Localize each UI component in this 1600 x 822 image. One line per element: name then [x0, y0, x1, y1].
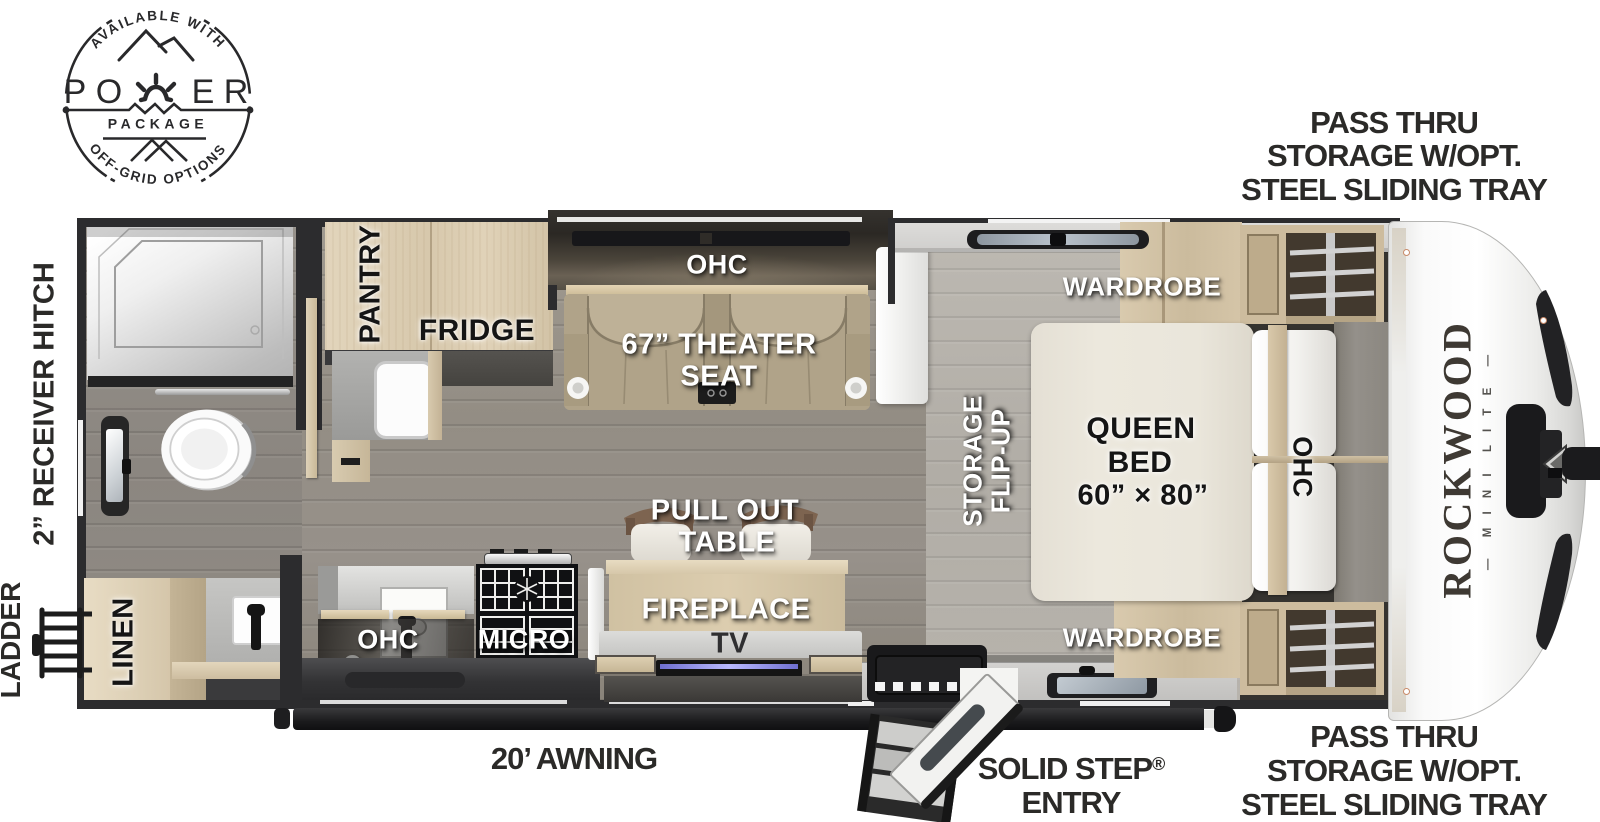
svg-text:P: P [64, 73, 87, 111]
svg-text:O: O [96, 73, 122, 111]
svg-text:R: R [224, 73, 249, 111]
svg-text:PACKAGE: PACKAGE [108, 116, 208, 132]
svg-text:E: E [192, 73, 215, 111]
